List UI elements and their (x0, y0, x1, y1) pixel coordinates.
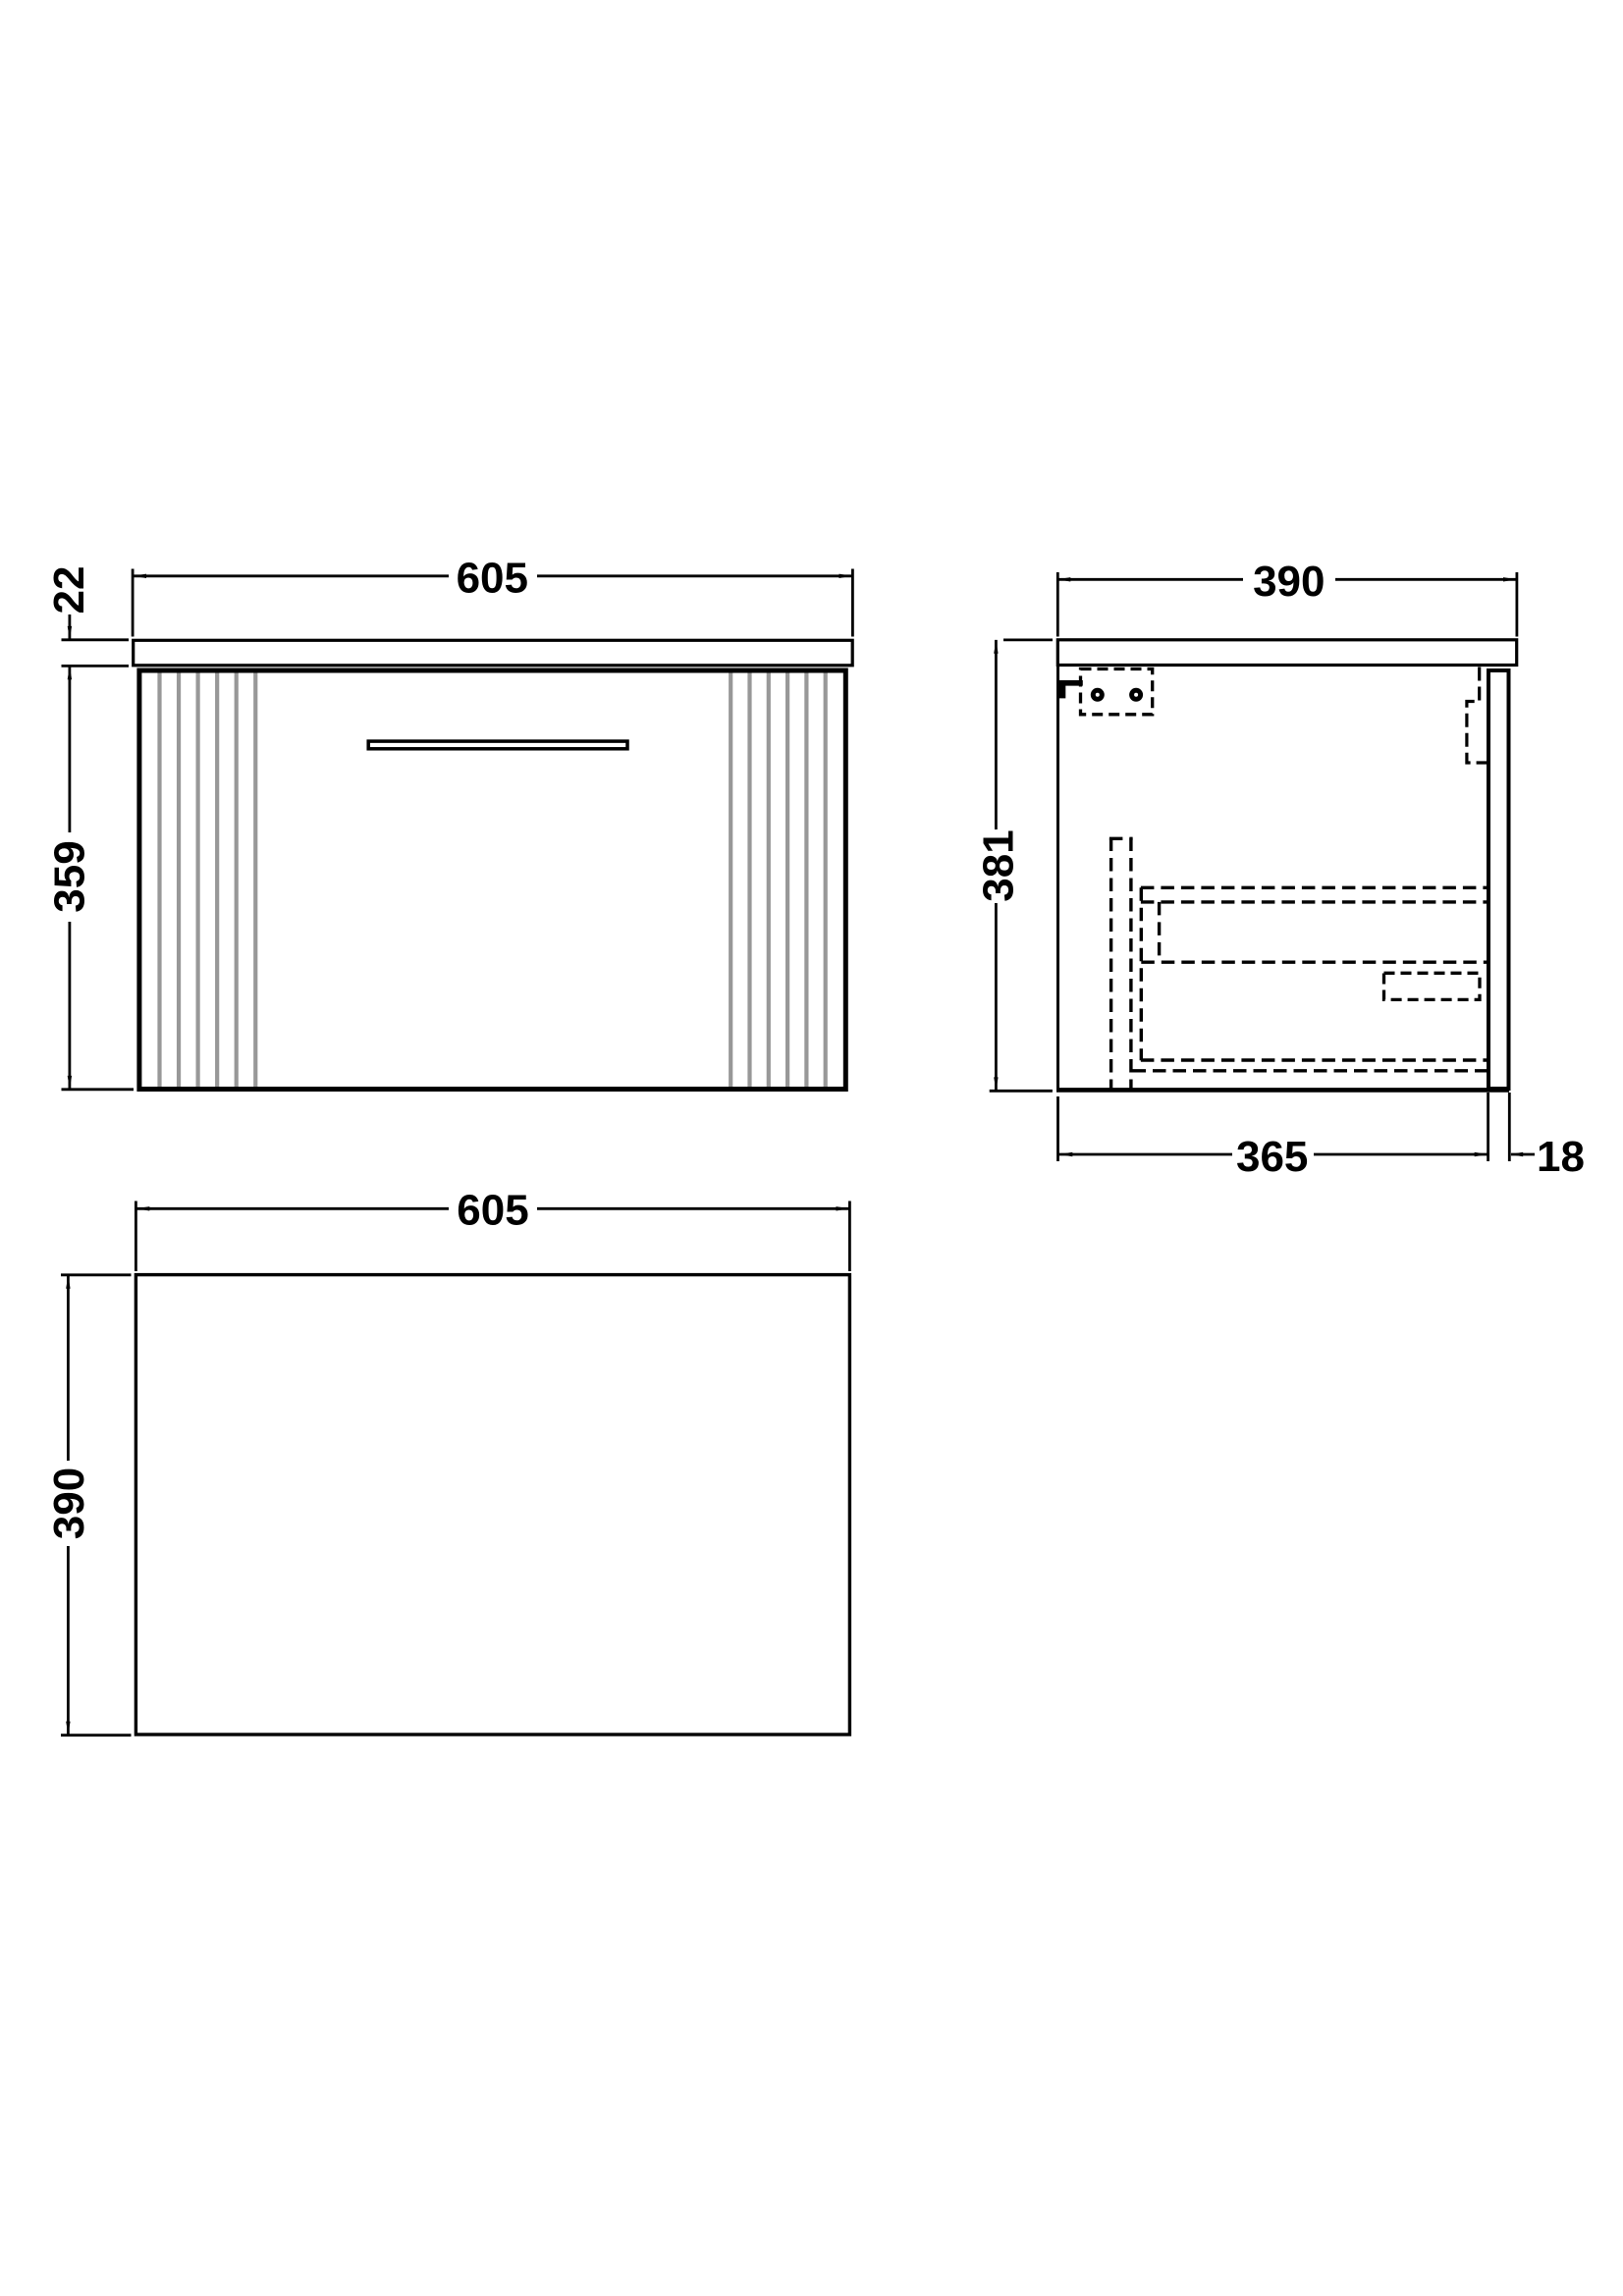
svg-text:22: 22 (45, 566, 93, 614)
svg-text:359: 359 (46, 840, 94, 912)
svg-text:390: 390 (1253, 558, 1325, 606)
svg-text:381: 381 (975, 829, 1023, 901)
svg-text:18: 18 (1537, 1133, 1585, 1181)
svg-text:390: 390 (45, 1468, 93, 1539)
svg-text:605: 605 (457, 555, 528, 603)
svg-text:365: 365 (1236, 1133, 1308, 1181)
svg-text:605: 605 (457, 1187, 528, 1235)
